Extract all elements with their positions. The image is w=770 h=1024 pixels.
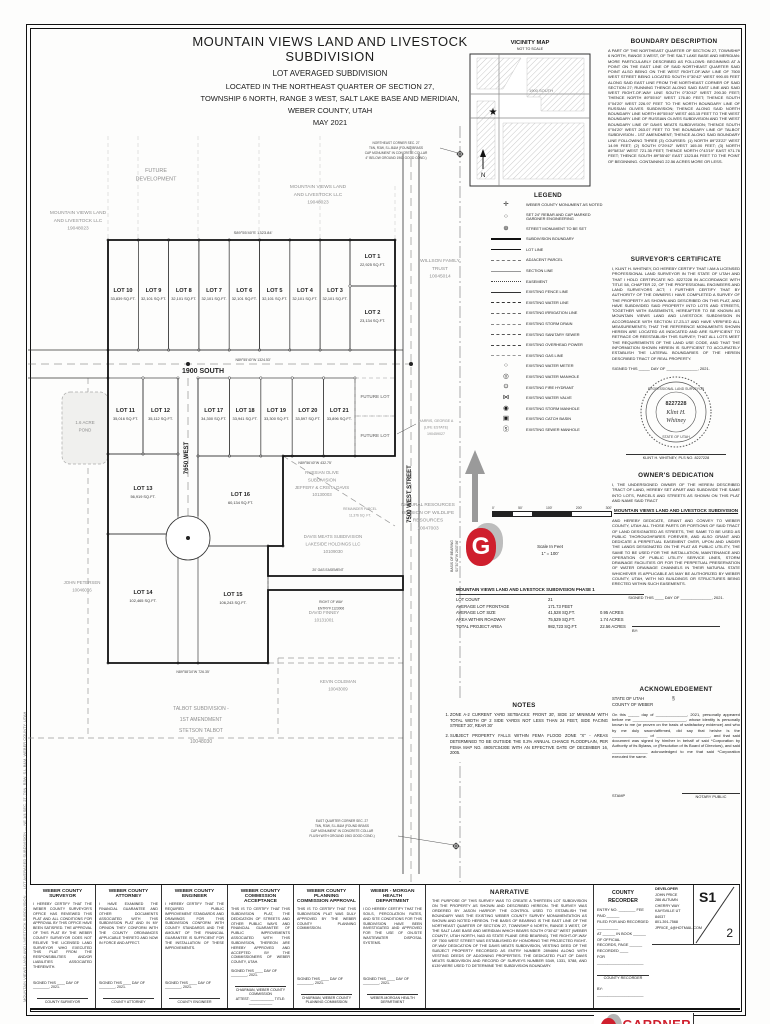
legend-label: LOT LINE (523, 248, 543, 252)
lot-label: LOT 13 (134, 486, 153, 492)
scale-tick: 100' (546, 506, 552, 510)
certificate-signed-line: SIGNED THIS _____ DAY OF ______________,… (612, 366, 740, 371)
lot-label: FUTURE LOT (360, 394, 389, 399)
recorder-line: RECORDS, PAGE ______ RECORDED ____ (597, 943, 649, 955)
surveyors-certificate: SURVEYOR'S CERTIFICATE I, KLINT H. WHITN… (612, 256, 740, 460)
map-label-line: CAP MONUMENT IN CONCRETE COLLAR (311, 829, 374, 833)
rebar-monument-icon (142, 377, 144, 379)
lot-label: LOT 12 (151, 408, 170, 414)
approval-signature-label: WEBER-MORGAN HEALTH DEPARTMENT (363, 996, 422, 1004)
summary-table-cell: 982,723 SQ.FT. (548, 624, 600, 631)
scale-caption-2: 1" = 100' (510, 551, 590, 556)
legend-label: STREET MONUMENT TO BE SET (523, 227, 586, 231)
approval-signature-label: CHAIRMAN, WEBER COUNTY PLANNING COMMISSI… (297, 996, 356, 1004)
legend-symbol-icon: ○ (489, 214, 523, 220)
scale-tick: 200' (576, 506, 582, 510)
legend-label: WEBER COUNTY MONUMENT AS NOTED (523, 203, 602, 207)
narrative-block: NARRATIVE THE PURPOSE OF THIS SURVEY WAS… (426, 885, 594, 1008)
map-label-line: 7500 WEST STREET (407, 465, 413, 523)
map-label-line: 10043009 (328, 686, 348, 691)
seal-arc-text: PROFESSIONAL LAND SURVEYOR (648, 387, 705, 391)
summary-table-cell: LOT COUNT (456, 597, 548, 604)
vicinity-map-drawing: 1900 SOUTH ★ N (469, 53, 591, 187)
map-label: FUTUREDEVELOPMENT (136, 168, 177, 182)
approval-signed-line: SIGNED THIS ____ DAY OF ________, 2021. (33, 977, 92, 989)
approval-signature-label: COUNTY ATTORNEY (99, 1000, 158, 1004)
lot-area: 33,896 SQ.FT. (327, 416, 352, 421)
map-label-line: T6N, R3W, S.L.B&M (FOUND BRASS (315, 824, 369, 828)
map-label-line: EAST QUARTER CORNER SEC. 27 (316, 819, 368, 823)
legend-symbol-icon (489, 353, 523, 359)
legend-label: EASEMENT (523, 280, 547, 284)
map-label-line: DAVID FINNEY (309, 610, 339, 615)
lot-label: LOT 16 (231, 492, 250, 498)
legend-label: EXISTING IRRIGATION LINE (523, 311, 577, 315)
gardner-name: GARDNER (622, 1019, 691, 1024)
legend-item: EASEMENT (489, 279, 607, 285)
approval-box-text: THIS IS TO CERTIFY THAT THIS SUBDIVISION… (231, 907, 290, 965)
legend-item: ◎EXISTING WATER MANHOLE (489, 374, 607, 380)
lot-label: FUTURE LOT (360, 433, 389, 438)
approval-signature-label: COUNTY SURVEYOR (33, 1000, 92, 1004)
map-label-line: 7650 WEST (184, 441, 190, 474)
recorder-line: FILED FOR AND RECORDED __________ (597, 920, 649, 932)
county-monument-icon (453, 843, 460, 850)
developer-line: 286 AUTUMN CHERRY WAY (655, 898, 690, 909)
map-label-line: 1ST AMENDMENT (180, 717, 222, 723)
legend-label: EXISTING WATER LINE (523, 301, 569, 305)
legend-item: ⋈EXISTING WATER VALVE (489, 395, 607, 401)
lot-polygon (260, 240, 290, 350)
approval-box-text: I HEREBY CERTIFY THAT THE WEBER COUNTY S… (33, 902, 92, 970)
dedication-by-label: BY: (632, 628, 740, 633)
lot-polygon (138, 240, 168, 350)
title-block-cluster: DEVELOPERJOHN PRICE286 AUTUMN CHERRY WAY… (594, 885, 740, 1008)
title-block: MOUNTAIN VIEWS LAND AND LIVESTOCK SUBDIV… (150, 34, 510, 127)
lot-area: 33,300 SQ.FT. (264, 416, 289, 421)
lot-area: 102,465 SQ.FT. (129, 598, 156, 603)
lot-polygon (199, 240, 229, 350)
lot-label: LOT 7 (206, 288, 222, 294)
lot-area: 33,597 SQ.FT. (295, 416, 320, 421)
approval-box-title: WEBER - MORGAN HEALTH DEPARTMENT (363, 889, 422, 904)
map-label: BASIS OF BEARINGS0°30'42"W 2637.56' (450, 540, 459, 572)
legend-symbol-icon: ○ (489, 364, 523, 370)
note-item: ZONE A-2 CURRENT YARD SETBACKS: FRONT 30… (450, 712, 608, 729)
acknowledgement-title: ACKNOWLEDGEMENT (612, 686, 740, 693)
bottom-approval-strip: WEBER COUNTY SURVEYORI HEREBY CERTIFY TH… (30, 884, 740, 1010)
scale-tick-labels: 0'50'100'200'300' (492, 506, 612, 510)
title-sub2: LOCATED IN THE NORTHEAST QUARTER OF SECT… (150, 82, 510, 91)
map-label: 7650 WEST (184, 441, 190, 474)
map-label: S89°55'40"E 1323.84' (234, 230, 273, 235)
map-label-line: JOHN PETERSEN (64, 580, 101, 585)
lots-layer: LOT 1033,839 SQ.FT.LOT 932,101 SQ.FT.LOT… (107, 239, 396, 664)
approval-signed-line: SIGNED THIS ____ DAY OF ________, 2021. (165, 977, 224, 989)
lot-label: LOT 3 (327, 288, 343, 294)
plat-sheet: MOUNTAIN VIEWS LAND AND LIVESTOCK SUBDIV… (0, 0, 770, 1024)
legend-symbol-icon (489, 300, 523, 306)
map-label: 20' GAS EASEMENT (312, 568, 343, 572)
legend-label: EXISTING STORM MANHOLE (523, 407, 580, 411)
map-label-line: N89°56'40"W 432.75' (298, 461, 331, 465)
gardner-g-map-logo: G (466, 528, 496, 566)
notes-title: NOTES (440, 702, 608, 709)
vicinity-note: NOT TO SCALE (468, 47, 592, 51)
map-label: NORTHEAST CORNER SEC. 27T6N, R3W, S.L.B&… (365, 141, 428, 160)
lot-label: LOT 9 (146, 288, 162, 294)
approval-box: WEBER COUNTY SURVEYORI HEREBY CERTIFY TH… (30, 885, 96, 1008)
legend-title: LEGEND (489, 192, 607, 199)
lot-label: LOT 2 (365, 310, 381, 316)
lot-area: 32,101 SQ.FT. (262, 296, 287, 301)
map-label-line: 10131001 (314, 617, 334, 622)
legend-item: SECTION LINE (489, 268, 607, 274)
lot-area: 35,016 SQ.FT. (113, 416, 138, 421)
map-label: RUSSIAN OLIVESUBDIVISIONJEFFERY & CRISTA… (295, 470, 349, 497)
map-labels-layer: FUTUREDEVELOPMENTMOUNTAIN VIEWS LANDAND … (50, 141, 461, 838)
legend-label: SUBDIVISION BOUNDARY (523, 237, 574, 241)
map-label-line: MOUNTAIN VIEWS LAND (50, 210, 107, 216)
title-sub3: TOWNSHIP 6 NORTH, RANGE 3 WEST, SALT LAK… (150, 94, 510, 103)
lot-area: 32,101 SQ.FT. (232, 296, 257, 301)
approval-box: WEBER COUNTY PLANNING COMMISSION APPROVA… (294, 885, 360, 1008)
lot-area: 32,101 SQ.FT. (171, 296, 196, 301)
map-label: MOUNTAIN VIEWS LANDAND LIVESTOCK LLC1904… (50, 210, 107, 232)
legend-symbol-icon: ⊙ (489, 385, 523, 391)
ack-county-line: COUNTY OF WEBER (612, 702, 672, 708)
legend-label: EXISTING SEWER MANHOLE (523, 428, 580, 432)
sheet-number: S1 (699, 889, 716, 905)
acknowledgement: ACKNOWLEDGEMENT STATE OF UTAH COUNTY OF … (612, 686, 740, 799)
legend-item: ▣EXISTING CATCH BASIN (489, 416, 607, 422)
legend-label: SET 24" REBAR AND CAP MARKED GARDNER ENG… (523, 213, 607, 222)
approval-signed-line: SIGNED THIS ____ DAY OF ________, 2021. (297, 973, 356, 985)
legend-items: ✛WEBER COUNTY MONUMENT AS NOTED○SET 24" … (489, 202, 607, 433)
recorder-line: ENTRY NO. ________ FEE PAID ______ (597, 908, 649, 920)
legend-symbol-icon: Ⓢ (489, 427, 523, 433)
map-label-line: 10046016 (72, 587, 92, 592)
acknowledgement-text: On this _____ day of ______________, 202… (612, 712, 740, 759)
map-label-line: DAVIS MEATS SUBDIVISION (304, 534, 362, 539)
recorder-line: FOR ______________________ (597, 955, 649, 967)
map-label-line: 190459027 (427, 432, 445, 436)
developer-line: JPRICE_4@HOTMAIL.COM (655, 926, 690, 932)
approval-box-title: WEBER COUNTY ATTORNEY (99, 889, 158, 899)
scale-caption: Scale In Feet 1" = 100' (510, 544, 590, 556)
approval-signed-line: SIGNED THIS ____ DAY OF ________, 2021. (231, 965, 290, 977)
dedication-signed-line: SIGNED THIS ____ DAY OF ______________, … (612, 595, 740, 600)
map-label-line: DEVELOPMENT (136, 176, 177, 182)
map-label: JOHN PETERSEN10046016 (64, 580, 101, 592)
map-label-line: ENTRY# 1123006 (318, 606, 345, 610)
map-label-line: WILLSON FAMILY (420, 258, 460, 264)
lot-area: 32,101 SQ.FT. (322, 296, 347, 301)
owners-dedication: OWNER'S DEDICATION I, THE UNDERSIGNED OW… (612, 472, 740, 633)
legend-symbol-icon (489, 268, 523, 274)
lot-area: 35,112 SQ.FT. (148, 416, 173, 421)
legend-item: ⓈEXISTING SEWER MANHOLE (489, 427, 607, 433)
map-label-line: 19048023 (67, 226, 89, 232)
lot-area: 60,134 SQ.FT. (228, 500, 253, 505)
map-label-line: STETSON TALBOT (179, 728, 223, 734)
map-label: RIGHT OF WAYENTRY# 1123006 (318, 600, 345, 610)
lot-label: LOT 20 (298, 408, 317, 414)
narrative-title: NARRATIVE (432, 889, 587, 896)
seal-name-1: Klint H. (665, 410, 685, 416)
map-label-line: HARRIS, GEORGE A (419, 419, 454, 423)
map-label-line: JEFFERY & CRISTA DAVIS (295, 485, 349, 490)
map-label-line: (LIFE ESTATE) (424, 426, 448, 430)
map-label-line: SUBDIVISION (308, 477, 336, 482)
map-label-line: BASIS OF BEARING (450, 540, 454, 572)
lot-area: 32,101 SQ.FT. (141, 296, 166, 301)
summary-table-cell: 75,529 SQ.FT. (548, 617, 600, 624)
legend-item: ○EXISTING WATER METER (489, 364, 607, 370)
lot-polygon (229, 240, 259, 350)
legend-symbol-icon (489, 289, 523, 295)
lot-area: 32,101 SQ.FT. (292, 296, 317, 301)
legend-symbol-icon: ◎ (489, 374, 523, 380)
county-monument-icon (457, 151, 464, 158)
lot-polygon (320, 240, 350, 350)
lot-label: LOT 1 (365, 254, 381, 260)
scale-tick: 0' (492, 506, 495, 510)
rebar-monument-icon (349, 285, 351, 287)
legend-label: EXISTING FIRE HYDRANT (523, 386, 574, 390)
approval-box: WEBER COUNTY ENGINEERI HEREBY CERTIFY TH… (162, 885, 228, 1008)
approval-signature-label: ATTEST: ____________ TITLE: ____________ (231, 997, 290, 1005)
legend-label: EXISTING WATER VALVE (523, 396, 572, 400)
vicinity-title: VICINITY MAP (468, 40, 592, 46)
legend-symbol-icon (489, 311, 523, 317)
map-label-line: 10047003 (417, 525, 439, 531)
approval-box: WEBER COUNTY ATTORNEYI HAVE EXAMINED THE… (96, 885, 162, 1008)
notes-block: NOTES ZONE A-2 CURRENT YARD SETBACKS: FR… (436, 700, 612, 762)
map-label: N89°58'34"W 726.35' (176, 670, 209, 674)
map-label-line: 10130003 (312, 492, 332, 497)
map-label-line: KEVIN COLEMAN (320, 679, 356, 684)
map-label-line: 1.6 ACRE (75, 420, 94, 425)
dedication-subdivision-name: MOUNTAIN VIEWS LAND AND LIVESTOCK SUBDIV… (612, 508, 740, 513)
map-label-line: FUTURE (145, 168, 167, 174)
map-label-line: FLUSH WITH GROUND 1963 GOOD COND.) (309, 834, 374, 838)
map-label-line: TRUST (432, 266, 448, 272)
approval-signature-label: CHAIRMAN, WEBER COUNTY COMMISSION (231, 988, 290, 996)
lot-label: LOT 19 (267, 408, 286, 414)
legend-symbol-icon: ✛ (489, 202, 523, 208)
approval-box-title: WEBER COUNTY ENGINEER (165, 889, 224, 899)
legend-item: ⊙EXISTING FIRE HYDRANT (489, 385, 607, 391)
legend: LEGEND ✛WEBER COUNTY MONUMENT AS NOTED○S… (489, 192, 607, 438)
legend-item: ADJACENT PARCEL (489, 258, 607, 264)
surveyor-seal: PROFESSIONAL LAND SURVEYOR 8227228 Klint… (638, 374, 714, 450)
map-label: N89°55'40"W 1324.53' (235, 358, 270, 362)
map-label-line: 10109030 (323, 549, 343, 554)
rebar-monument-icon (322, 377, 324, 379)
approval-box-title: WEBER COUNTY PLANNING COMMISSION APPROVA… (297, 889, 356, 904)
recorder-lines: ENTRY NO. ________ FEE PAID ______FILED … (597, 908, 649, 967)
gardner-g-logo: G (600, 1018, 617, 1024)
lot-area: 22,925 SQ.FT. (360, 262, 385, 267)
summary-table-cell: TOTAL PROJECT AREA (456, 624, 548, 631)
boundary-description-title: BOUNDARY DESCRIPTION (608, 38, 740, 45)
legend-item: EXISTING WATER LINE (489, 300, 607, 306)
rebar-monument-icon (228, 377, 230, 379)
map-label: DAVIS MEATS SUBDIVISIONLAKESIDE HOLDINGS… (304, 534, 362, 554)
seal-number: 8227228 (666, 401, 687, 407)
map-label-line: 1900 SOUTH (182, 368, 224, 375)
map-label-line: 4" BELOW GROUND 1963 GOOD COND.) (365, 156, 426, 160)
owners-dedication-text2: AND HEREBY DEDICATE, GRANT AND CONVEY TO… (612, 518, 740, 586)
narrative-text: THE PURPOSE OF THIS SURVEY WAS TO CREATE… (432, 899, 587, 969)
owners-dedication-title: OWNER'S DEDICATION (612, 472, 740, 479)
legend-label: EXISTING SANITARY SEWER (523, 333, 580, 337)
lot-area: 32,101 SQ.FT. (201, 296, 226, 301)
ack-section-symbol: § (672, 696, 675, 708)
legend-item: EXISTING IRRIGATION LINE (489, 311, 607, 317)
scale-bar: 0'50'100'200'300' (492, 506, 612, 517)
owners-dedication-text1: I, THE UNDERSIGNED OWNER OF THE HEREIN D… (612, 482, 740, 503)
title-sub1: LOT AVERAGED SUBDIVISION (150, 69, 510, 78)
lot-area: 33,839 SQ.FT. (110, 296, 135, 301)
summary-table-cell: 41,528 SQ.FT. (548, 610, 600, 617)
county-recorder-title: COUNTY RECORDER (597, 889, 649, 905)
map-label-line: N89°58'34"W 726.35' (176, 670, 209, 674)
surveyor-signature-name: KLINT H. WHITNEY, PLS NO. 8227228 (626, 454, 726, 460)
legend-label: EXISTING GAS LINE (523, 354, 563, 358)
row-easement-strip (268, 576, 403, 590)
legend-item: SUBDIVISION BOUNDARY (489, 236, 607, 242)
summary-table-cell: 171.73 FEET (548, 604, 600, 611)
lot-label: LOT 6 (236, 288, 252, 294)
lot-label: LOT 10 (114, 288, 133, 294)
title-sub4: WEBER COUNTY, UTAH (150, 106, 510, 115)
recorder-by-line: BY: ______________________ (597, 987, 649, 999)
lot-label: LOT 17 (204, 408, 223, 414)
approval-box: WEBER COUNTY COMMISSION ACCEPTANCETHIS I… (228, 885, 294, 1008)
legend-symbol-icon (489, 321, 523, 327)
map-label: MOUNTAIN VIEWS LANDAND LIVESTOCK LLC1904… (290, 184, 347, 206)
boundary-description: BOUNDARY DESCRIPTION A PART OF THE NORTH… (608, 38, 740, 164)
legend-symbol-icon (489, 332, 523, 338)
legend-item: ✛WEBER COUNTY MONUMENT AS NOTED (489, 202, 607, 208)
lot-polygon (290, 240, 320, 350)
legend-item: EXISTING GAS LINE (489, 353, 607, 359)
seal-state-text: STATE OF UTAH (662, 435, 690, 439)
legend-item: ⊕STREET MONUMENT TO BE SET (489, 226, 607, 232)
legend-symbol-icon (489, 236, 523, 242)
lot-area: 23,134 SQ.FT. (360, 318, 385, 323)
legend-label: EXISTING WATER METER (523, 364, 574, 368)
map-label-line: TALBOT SUBDIVISION - (173, 706, 229, 712)
map-label: HARRIS, GEORGE A(LIFE ESTATE)190459027 (419, 419, 454, 436)
recorder-line: AT ______ IN BOOK ______ OF OFFICIAL (597, 932, 649, 944)
lot-polygon (108, 240, 138, 350)
lot-area: 34,300 SQ.FT. (201, 416, 226, 421)
street-monument-icon (409, 362, 413, 366)
surveyors-certificate-title: SURVEYOR'S CERTIFICATE (612, 256, 740, 263)
legend-item: EXISTING STORM DRAIN (489, 321, 607, 327)
legend-label: EXISTING OVERHEAD POWER (523, 343, 583, 347)
page-title: MOUNTAIN VIEWS LAND AND LIVESTOCK SUBDIV… (150, 34, 510, 64)
approval-box-title: WEBER COUNTY SURVEYOR (33, 889, 92, 899)
side-filing-text: MOUNTAIN VIEWS LAND AND LIVESTOCK SUBDIV… (22, 712, 27, 1002)
summary-table-cell: AVERAGE LOT SIZE (456, 610, 548, 617)
approval-boxes: WEBER COUNTY SURVEYORI HEREBY CERTIFY TH… (30, 885, 426, 1008)
legend-item: ◉EXISTING STORM MANHOLE (489, 406, 607, 412)
map-label-line: 20' GAS EASEMENT (312, 568, 343, 572)
map-label-line: AND LIVESTOCK LLC (294, 192, 343, 198)
map-label: TALBOT SUBDIVISION -1ST AMENDMENTSTETSON… (173, 706, 229, 745)
map-label: 1900 SOUTH (182, 368, 224, 375)
plat-map: LOT 1033,839 SQ.FT.LOT 932,101 SQ.FT.LOT… (28, 126, 484, 882)
legend-symbol-icon (489, 279, 523, 285)
county-recorder-box: COUNTY RECORDER ENTRY NO. ________ FEE P… (594, 885, 652, 1013)
summary-table-cell: AVERAGE LOT FRONTAGE (456, 604, 548, 611)
seal-name-2: Whitney (666, 418, 686, 424)
map-label-line: S89°55'40"E 1323.84' (234, 230, 273, 235)
boundary-description-text: A PART OF THE NORTHEAST QUARTER OF SECTI… (608, 48, 740, 164)
developer-line: KAYSVILLE UT 84037 (655, 909, 690, 920)
map-label-line: S0°30'42"W 2637.56' (455, 540, 459, 572)
approval-box-text: I HAVE EXAMINED THE FINANCIAL GUARANTEE … (99, 902, 158, 946)
approval-box-text: THIS IS TO CERTIFY THAT THIS SUBDIVISION… (297, 907, 356, 931)
map-label-line: POND (79, 427, 92, 432)
rebar-monument-icon (291, 377, 293, 379)
street-monument-icon (186, 536, 190, 540)
legend-label: EXISTING CATCH BASIN (523, 417, 571, 421)
sheet-number-box: S1 2 (694, 885, 740, 945)
legend-item: EXISTING SANITARY SEWER (489, 332, 607, 338)
legend-item: EXISTING FENCE LINE (489, 289, 607, 295)
summary-table-cell: 21 (548, 597, 600, 604)
map-label-line: AND LIVESTOCK LLC (54, 218, 103, 224)
map-label-line: RESOURCES (413, 518, 443, 524)
approval-box-text: I DO HEREBY CERTIFY THAT THE SOILS, PERC… (363, 907, 422, 946)
vicinity-road-label: 1900 SOUTH (529, 88, 553, 93)
map-label-line: N89°55'40"W 1324.53' (235, 358, 270, 362)
scale-caption-1: Scale In Feet (510, 544, 590, 549)
lot-label: LOT 11 (116, 408, 135, 414)
legend-item: EXISTING OVERHEAD POWER (489, 342, 607, 348)
map-label-line: T6N, R3W, S.L.B&M (FOUND BRASS (369, 146, 423, 150)
legend-symbol-icon: ⋈ (489, 395, 523, 401)
approval-signature-label: COUNTY ENGINEER (165, 1000, 224, 1004)
scale-tick: 50' (518, 506, 522, 510)
map-label-line: 10048030 (190, 739, 212, 745)
lot-label: LOT 21 (330, 408, 349, 414)
developer-box: DEVELOPERJOHN PRICE286 AUTUMN CHERRY WAY… (652, 885, 694, 945)
legend-item: LOT LINE (489, 247, 607, 253)
map-label-line: 19048023 (307, 200, 329, 206)
vicinity-map: VICINITY MAP NOT TO SCALE 1900 SOUTH ★ N (468, 40, 592, 192)
sheet-total: 2 (726, 926, 733, 940)
lot-label: LOT 15 (224, 592, 243, 598)
approval-box-title: WEBER COUNTY COMMISSION ACCEPTANCE (231, 889, 290, 904)
lot-area: 56,919 SQ.FT. (130, 494, 155, 499)
projected-lot-lines (108, 136, 395, 240)
lot-label: LOT 4 (297, 288, 314, 294)
legend-label: EXISTING FENCE LINE (523, 290, 568, 294)
map-label-line: 11,376 SQ. FT. (349, 513, 371, 517)
map-label: DAVID FINNEY10131001 (309, 610, 339, 622)
legend-symbol-icon: ▣ (489, 416, 523, 422)
north-arrow-icon (462, 448, 488, 526)
legend-label: SECTION LINE (523, 269, 553, 273)
ack-notary-label: NOTARY PUBLIC (682, 794, 740, 799)
rebar-monument-icon (260, 377, 262, 379)
